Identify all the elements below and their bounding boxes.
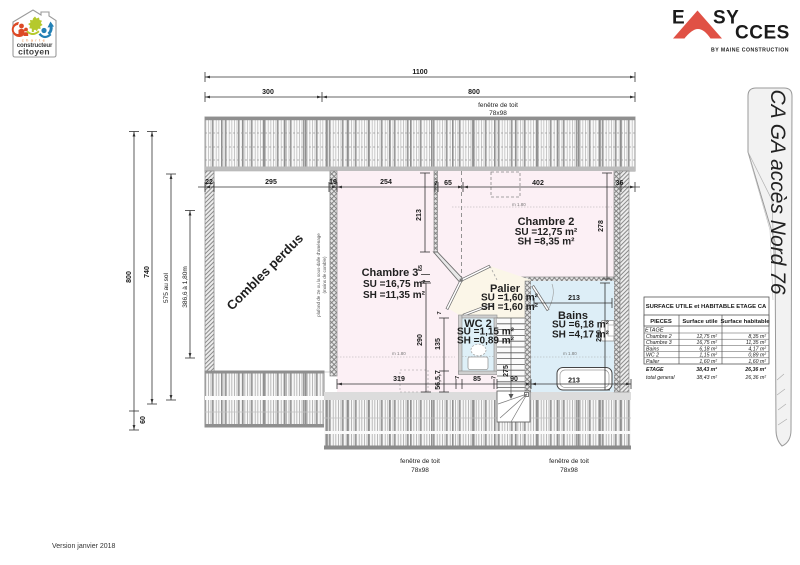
svg-text:Bains: Bains <box>646 346 659 352</box>
svg-text:26,36 m²: 26,36 m² <box>745 375 767 381</box>
svg-text:56,5,7: 56,5,7 <box>435 370 442 390</box>
svg-text:90: 90 <box>510 376 518 383</box>
svg-text:12,75 m²: 12,75 m² <box>697 334 718 340</box>
svg-text:SH =1,60 m²: SH =1,60 m² <box>481 302 539 313</box>
svg-text:16,75 m²: 16,75 m² <box>697 340 718 346</box>
svg-text:1,60 m²: 1,60 m² <box>748 359 766 365</box>
svg-text:BY MAINE CONSTRUCTION: BY MAINE CONSTRUCTION <box>711 48 789 54</box>
svg-text:m 1.80: m 1.80 <box>512 202 526 207</box>
svg-text:Surface utile: Surface utile <box>682 319 718 325</box>
svg-text:(moins de comble): (moins de comble) <box>322 256 327 294</box>
svg-text:Chambre 3: Chambre 3 <box>646 340 672 346</box>
svg-text:E: E <box>672 8 685 29</box>
svg-text:6,18 m²: 6,18 m² <box>699 346 717 352</box>
svg-text:800: 800 <box>468 89 480 96</box>
svg-text:386,6 à 1,80m: 386,6 à 1,80m <box>182 266 189 308</box>
svg-text:19: 19 <box>329 179 337 186</box>
svg-text:SU =16,75 m²: SU =16,75 m² <box>363 279 426 290</box>
svg-text:Chambre 3: Chambre 3 <box>362 267 419 279</box>
svg-text:fenêtre de toit: fenêtre de toit <box>549 458 589 465</box>
svg-text:7: 7 <box>434 181 437 187</box>
svg-text:1100: 1100 <box>412 69 427 76</box>
svg-text:CCES: CCES <box>735 23 790 44</box>
svg-text:m 1.80: m 1.80 <box>563 351 577 356</box>
svg-text:CA GA accès Nord 76: CA GA accès Nord 76 <box>766 89 789 294</box>
svg-text:SH =11,35 m²: SH =11,35 m² <box>363 290 426 301</box>
svg-text:ETAGE: ETAGE <box>646 367 664 373</box>
svg-text:Chambre 2: Chambre 2 <box>646 334 672 340</box>
svg-text:plafond de 2e ou la sous-dalle: plafond de 2e ou la sous-dalle d'aménage <box>316 233 321 317</box>
svg-text:254: 254 <box>380 179 392 186</box>
svg-text:135: 135 <box>435 338 442 350</box>
svg-text:38,43 m²: 38,43 m² <box>696 367 717 373</box>
svg-text:36: 36 <box>616 180 624 187</box>
svg-text:740: 740 <box>144 266 151 278</box>
svg-text:WC 2: WC 2 <box>646 353 659 359</box>
svg-text:402: 402 <box>532 180 544 187</box>
svg-text:SH =8,35 m²: SH =8,35 m² <box>518 237 576 248</box>
svg-text:213: 213 <box>568 295 580 302</box>
svg-text:78x98: 78x98 <box>489 110 507 117</box>
svg-text:ETAGE: ETAGE <box>645 328 664 334</box>
svg-text:278: 278 <box>598 220 605 232</box>
svg-text:65: 65 <box>444 180 452 187</box>
svg-text:Palier: Palier <box>646 359 660 365</box>
svg-text:Surface habitable: Surface habitable <box>720 319 770 325</box>
svg-text:Version janvier 2018: Version janvier 2018 <box>52 543 116 550</box>
svg-text:78x98: 78x98 <box>411 467 429 474</box>
svg-text:85: 85 <box>473 376 481 383</box>
svg-text:7: 7 <box>455 376 461 379</box>
svg-text:SURFACE UTILE et HABITABLE ETA: SURFACE UTILE et HABITABLE ETAGE CA <box>646 304 767 310</box>
svg-text:8,35 m²: 8,35 m² <box>748 334 766 340</box>
svg-text:575 au sol: 575 au sol <box>163 272 170 303</box>
svg-text:800: 800 <box>126 271 133 283</box>
svg-text:7: 7 <box>437 311 443 314</box>
svg-text:60: 60 <box>140 416 147 424</box>
svg-text:275: 275 <box>503 365 510 377</box>
svg-text:213: 213 <box>568 378 580 385</box>
svg-text:78x98: 78x98 <box>560 467 578 474</box>
svg-text:295: 295 <box>265 179 277 186</box>
svg-text:fenêtre de toit: fenêtre de toit <box>400 458 440 465</box>
svg-text:7: 7 <box>492 376 498 379</box>
svg-text:1,60 m²: 1,60 m² <box>699 359 717 365</box>
svg-text:1,15 m²: 1,15 m² <box>699 353 717 359</box>
svg-text:PIECES: PIECES <box>650 319 672 325</box>
svg-text:11,35 m²: 11,35 m² <box>746 340 766 346</box>
svg-text:290: 290 <box>417 334 424 346</box>
svg-text:SH =0,89 m²: SH =0,89 m² <box>457 336 515 347</box>
svg-text:213: 213 <box>416 209 423 221</box>
svg-text:citoyen: citoyen <box>18 47 50 57</box>
svg-text:fenêtre de toit: fenêtre de toit <box>478 102 518 109</box>
svg-text:0,89 m²: 0,89 m² <box>748 353 766 359</box>
svg-text:65: 65 <box>418 265 424 271</box>
svg-text:319: 319 <box>393 376 405 383</box>
svg-text:22: 22 <box>205 179 213 186</box>
svg-text:m 1.80: m 1.80 <box>392 351 406 356</box>
svg-text:total general: total general <box>646 375 675 381</box>
svg-text:26,36 m²: 26,36 m² <box>744 367 766 373</box>
svg-text:38,43 m²: 38,43 m² <box>697 375 718 381</box>
svg-text:300: 300 <box>262 89 274 96</box>
svg-text:4,17 m²: 4,17 m² <box>748 346 766 352</box>
svg-text:260: 260 <box>596 330 603 342</box>
